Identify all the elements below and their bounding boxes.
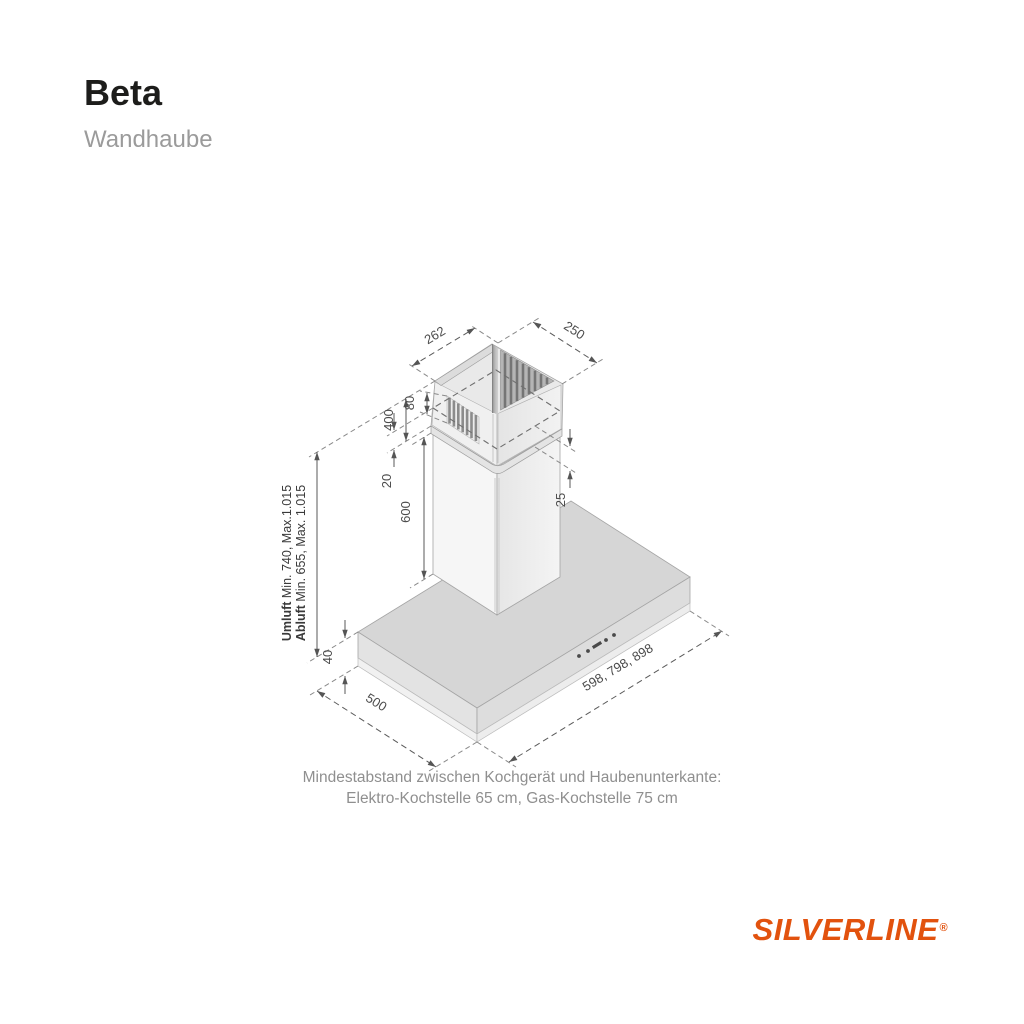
dim-label-overlap-left: 20 — [379, 474, 394, 488]
note-line-1: Mindestabstand zwischen Kochgerät und Ha… — [0, 767, 1024, 788]
brand-logo-text: SILVERLINE — [753, 912, 939, 947]
dim-label-duct-depth: 262 — [422, 323, 448, 347]
hood-technical-drawing: 262 250 80 400 20 25 600 40 500 598, 798… — [0, 0, 1024, 1024]
dim-label-abluft-height: Abluft Min. 655, Max. 1.015 — [294, 485, 308, 641]
min-distance-note: Mindestabstand zwischen Kochgerät und Ha… — [0, 767, 1024, 809]
dim-label-body-height: 40 — [320, 650, 335, 664]
brand-logo: SILVERLINE® — [548, 912, 948, 948]
dim-label-umluft-height: Umluft Min. 740, Max.1.015 — [280, 485, 294, 641]
dim-label-vent-height: 80 — [402, 396, 417, 410]
note-line-2: Elektro-Kochstelle 65 cm, Gas-Kochstelle… — [0, 788, 1024, 809]
dim-label-duct-width: 250 — [561, 318, 587, 342]
dim-label-overlap-right: 25 — [553, 493, 568, 507]
dim-label-upper-section: 400 — [381, 409, 396, 431]
registered-mark: ® — [939, 922, 948, 934]
dim-label-body-depth: 500 — [363, 690, 389, 714]
datasheet-page: Beta Wandhaube — [0, 0, 1024, 1024]
dim-label-lower-section: 600 — [398, 501, 413, 523]
